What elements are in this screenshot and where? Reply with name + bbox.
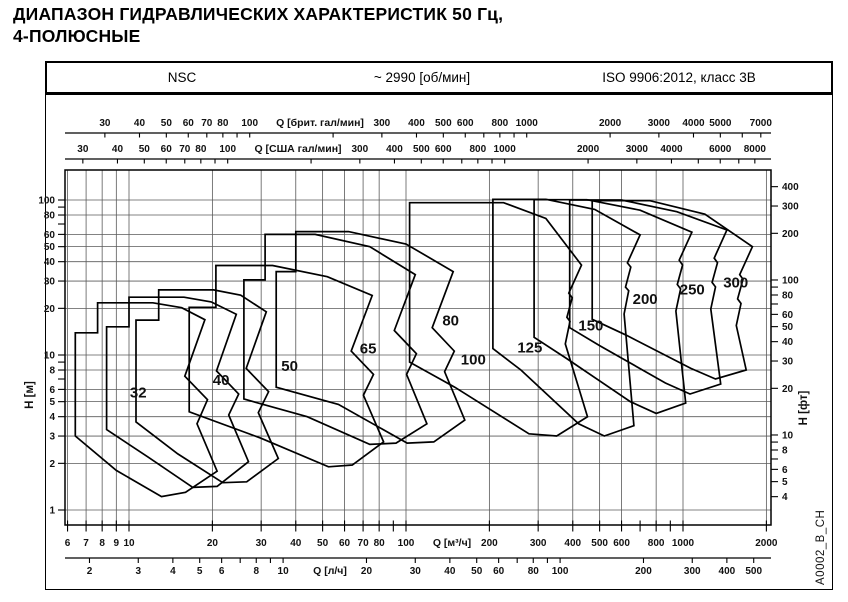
tick-label: 600: [435, 144, 452, 155]
tick-label: 400: [719, 566, 736, 577]
tick-label: 800: [469, 144, 486, 155]
tick-label: 60: [782, 310, 794, 321]
tick-label: 2000: [599, 118, 622, 129]
pump-size-label-80: 80: [442, 312, 459, 329]
tick-label: 200: [481, 538, 498, 549]
tick-label: 30: [99, 118, 111, 129]
tick-label: 6: [49, 385, 55, 396]
pump-size-label-150: 150: [578, 317, 603, 334]
tick-label: 60: [493, 566, 505, 577]
tick-label: 50: [782, 322, 794, 333]
page: ДИАПАЗОН ГИДРАВЛИЧЕСКИХ ХАРАКТЕРИСТИК 50…: [0, 0, 848, 602]
tick-label: 50: [139, 144, 151, 155]
pump-size-label-125: 125: [517, 339, 542, 356]
axis-unit-label-m3h: Q [м³/ч]: [433, 537, 471, 549]
tick-label: 20: [44, 304, 56, 315]
tick-label: 100: [552, 566, 569, 577]
tick-label: 3000: [626, 144, 649, 155]
tick-label: 8: [99, 538, 105, 549]
pump-size-label-200: 200: [633, 291, 658, 308]
tick-label: 6: [219, 566, 225, 577]
hydraulic-range-chart: 3040506070801003004005006008001000200030…: [0, 0, 848, 602]
tick-label: 100: [782, 275, 799, 286]
tick-label: 6: [782, 465, 788, 476]
tick-label: 1000: [494, 144, 517, 155]
tick-label: 400: [386, 144, 403, 155]
tick-label: 4: [170, 566, 176, 577]
tick-label: 10: [123, 538, 135, 549]
tick-label: 6000: [709, 144, 732, 155]
tick-label: 100: [219, 144, 236, 155]
tick-label: 300: [782, 202, 799, 213]
tick-label: 400: [564, 538, 581, 549]
tick-label: 30: [782, 357, 794, 368]
tick-label: 70: [179, 144, 191, 155]
tick-label: 600: [613, 538, 630, 549]
pump-size-label-40: 40: [213, 372, 230, 389]
tick-label: 2: [87, 566, 93, 577]
tick-label: 50: [44, 242, 56, 253]
tick-label: 400: [782, 182, 799, 193]
tick-label: 300: [374, 118, 391, 129]
tick-label: 600: [457, 118, 474, 129]
axis-unit-label-ls: Q [л/ч]: [313, 565, 347, 577]
axis-title-h_m: H [м]: [24, 381, 36, 409]
tick-label: 4000: [660, 144, 683, 155]
drawing-code-watermark: A0002_B_CH: [815, 510, 827, 585]
tick-label: 80: [195, 144, 207, 155]
tick-label: 60: [183, 118, 195, 129]
tick-label: 500: [591, 538, 608, 549]
tick-label: 70: [201, 118, 213, 129]
tick-label: 50: [317, 538, 329, 549]
tick-label: 1: [49, 506, 55, 517]
tick-label: 6: [65, 538, 71, 549]
axis-unit-label-us_gpm: Q [США гал/мин]: [254, 143, 341, 155]
tick-label: 4: [782, 492, 788, 503]
tick-label: 50: [161, 118, 173, 129]
tick-label: 400: [408, 118, 425, 129]
tick-label: 2000: [577, 144, 600, 155]
tick-label: 1000: [516, 118, 539, 129]
tick-label: 20: [782, 384, 794, 395]
tick-label: 80: [528, 566, 540, 577]
tick-label: 200: [635, 566, 652, 577]
tick-label: 5000: [709, 118, 732, 129]
axis-unit-label-imp_gpm: Q [брит. гал/мин]: [276, 117, 364, 129]
tick-label: 40: [444, 566, 456, 577]
axis-us_gpm: 3040506070801003004005006008001000200030…: [65, 143, 771, 164]
tick-label: 3: [49, 432, 55, 443]
envelope-40: [107, 297, 249, 487]
tick-label: 30: [410, 566, 422, 577]
tick-label: 100: [241, 118, 258, 129]
tick-label: 8: [253, 566, 259, 577]
tick-label: 5: [782, 477, 788, 488]
axis-ls: 23456810203040506080100200300400500Q [л/…: [65, 558, 771, 577]
tick-label: 80: [782, 290, 794, 301]
tick-label: 8: [49, 366, 55, 377]
tick-label: 60: [161, 144, 173, 155]
envelope-200: [534, 200, 692, 414]
tick-label: 60: [339, 538, 351, 549]
pump-size-label-65: 65: [360, 341, 377, 358]
envelopes: [75, 199, 752, 496]
tick-label: 7000: [750, 118, 773, 129]
tick-label: 8000: [744, 144, 767, 155]
tick-label: 9: [114, 538, 120, 549]
tick-label: 30: [44, 277, 56, 288]
tick-label: 3: [135, 566, 141, 577]
tick-label: 100: [38, 196, 55, 207]
tick-label: 7: [83, 538, 89, 549]
tick-label: 800: [648, 538, 665, 549]
tick-label: 100: [398, 538, 415, 549]
tick-label: 40: [782, 337, 794, 348]
pump-size-label-300: 300: [723, 275, 748, 292]
tick-label: 500: [413, 144, 430, 155]
tick-label: 20: [361, 566, 373, 577]
axis-h_ft: 456810203040506080100200300400H [фт]: [771, 182, 810, 503]
tick-label: 800: [492, 118, 509, 129]
tick-label: 40: [290, 538, 302, 549]
pump-size-label-250: 250: [680, 282, 705, 299]
tick-label: 1000: [672, 538, 695, 549]
pump-size-label-50: 50: [281, 358, 298, 375]
tick-label: 80: [217, 118, 229, 129]
tick-label: 4000: [682, 118, 705, 129]
axis-title-h_ft: H [фт]: [798, 390, 810, 425]
envelope-125: [410, 203, 588, 436]
tick-label: 70: [358, 538, 370, 549]
tick-label: 60: [44, 230, 56, 241]
tick-label: 40: [112, 144, 124, 155]
tick-label: 30: [77, 144, 89, 155]
tick-label: 2000: [755, 538, 778, 549]
tick-label: 80: [374, 538, 386, 549]
tick-label: 500: [435, 118, 452, 129]
tick-label: 40: [134, 118, 146, 129]
tick-label: 80: [44, 211, 56, 222]
tick-label: 300: [352, 144, 369, 155]
pump-size-label-32: 32: [130, 385, 147, 402]
axis-imp_gpm: 3040506070801003004005006008001000200030…: [65, 117, 772, 138]
tick-label: 5: [197, 566, 203, 577]
tick-label: 5: [49, 397, 55, 408]
tick-label: 50: [471, 566, 483, 577]
tick-label: 300: [684, 566, 701, 577]
tick-label: 300: [530, 538, 547, 549]
tick-label: 500: [745, 566, 762, 577]
tick-label: 10: [782, 430, 794, 441]
tick-label: 8: [782, 445, 788, 456]
pump-size-label-100: 100: [461, 351, 486, 368]
tick-label: 10: [278, 566, 290, 577]
tick-label: 40: [44, 257, 56, 268]
tick-label: 30: [256, 538, 268, 549]
tick-label: 10: [44, 351, 56, 362]
tick-label: 200: [782, 229, 799, 240]
tick-label: 2: [49, 459, 55, 470]
tick-label: 20: [207, 538, 219, 549]
tick-label: 4: [49, 412, 55, 423]
tick-label: 3000: [648, 118, 671, 129]
axis-h_m: 123456810203040506080100H [м]: [24, 196, 65, 517]
envelope-50: [136, 290, 278, 483]
